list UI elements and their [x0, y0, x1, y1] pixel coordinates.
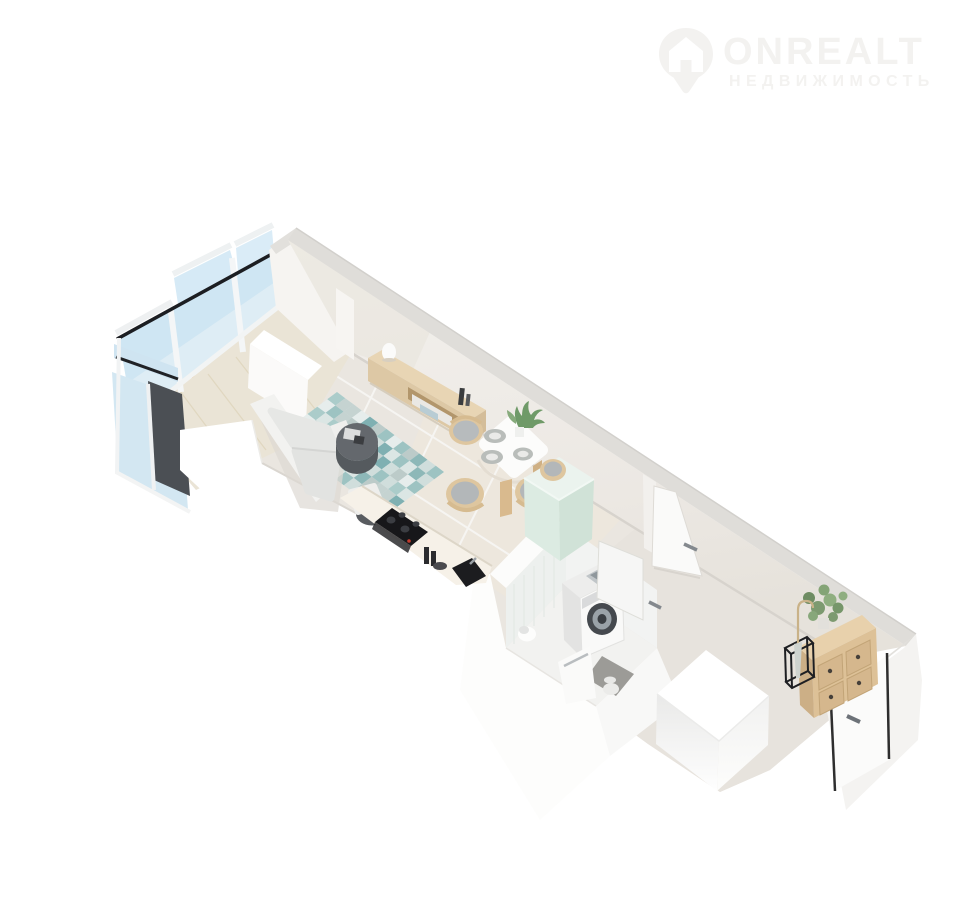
svg-text:ONREALT: ONREALT — [723, 31, 925, 73]
svg-text:НЕДВИЖИМОСТЬ: НЕДВИЖИМОСТЬ — [729, 73, 935, 90]
